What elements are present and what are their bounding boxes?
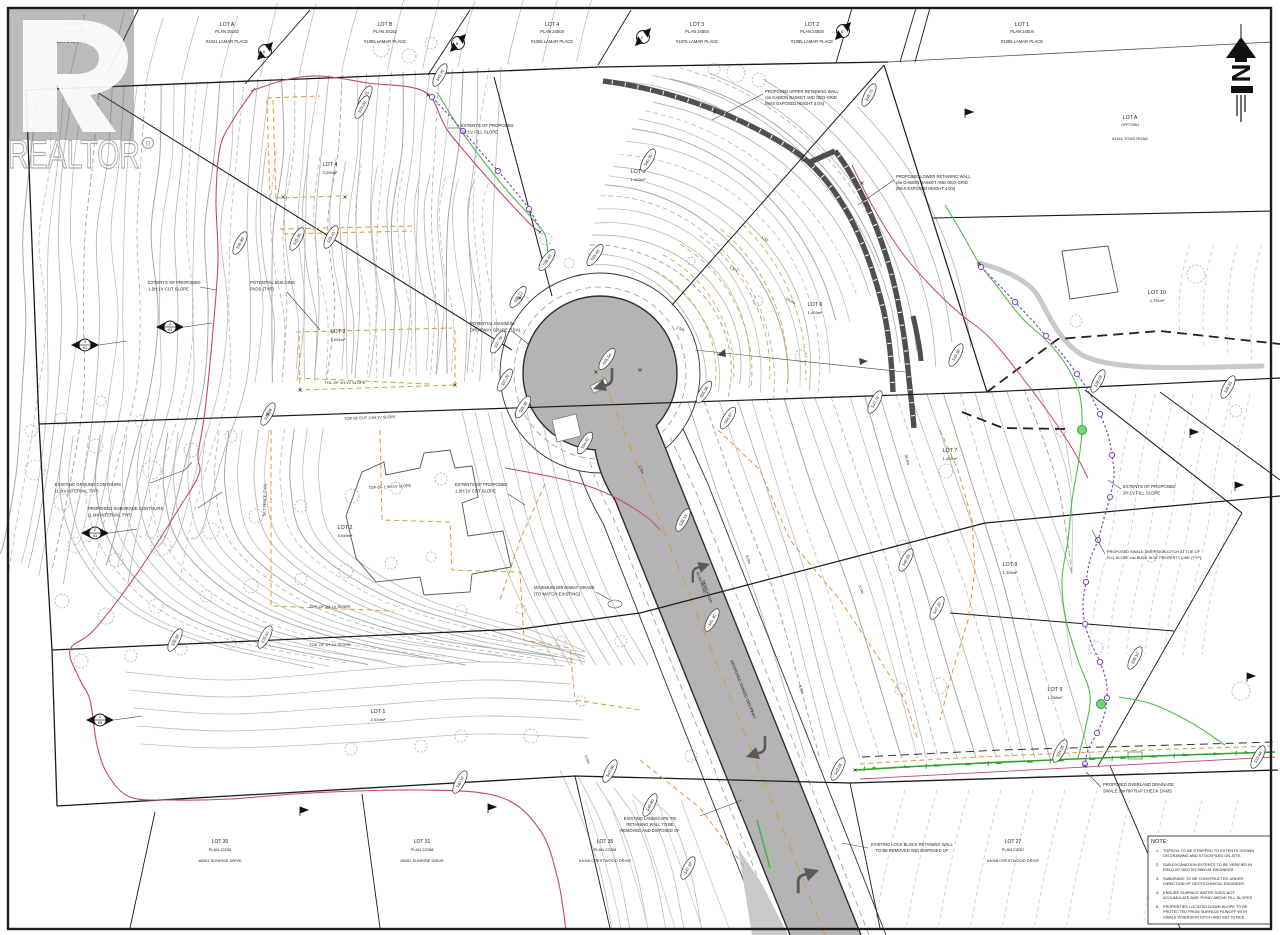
- svg-text:03: 03: [98, 721, 102, 725]
- svg-text:DIRECTION OF GEOTECHNICAL ENGI: DIRECTION OF GEOTECHNICAL ENGINEER.: [1163, 881, 1245, 886]
- svg-text:RETAINING WALL TO BE: RETAINING WALL TO BE: [626, 822, 674, 827]
- svg-text:LOT 9: LOT 9: [1048, 687, 1063, 693]
- svg-text:LOT 27: LOT 27: [1005, 839, 1022, 845]
- svg-text:LOT 4: LOT 4: [545, 22, 559, 28]
- svg-text:SWALE DIVERSION DITCH AND SILT: SWALE DIVERSION DITCH AND SILT FENCE.: [1163, 914, 1245, 919]
- svg-text:PROPOSED OVERLAND DRAINAGE: PROPOSED OVERLAND DRAINAGE: [1103, 782, 1174, 787]
- svg-text:EXTENTS OF PROPOSED: EXTENTS OF PROPOSED: [148, 280, 201, 285]
- svg-text:LOT 31: LOT 31: [414, 839, 431, 845]
- svg-text:PROPOSED SUBGRADE CONTOURS: PROPOSED SUBGRADE CONTOURS: [88, 506, 164, 511]
- svg-text:2H:1V FILL SLOPE: 2H:1V FILL SLOPE: [1123, 491, 1160, 496]
- svg-text:#8301 SUNRISE DRIVE: #8301 SUNRISE DRIVE: [198, 858, 242, 863]
- svg-text:LOT A: LOT A: [1123, 115, 1138, 121]
- svg-text:ON DRAWING AND STOCKPILED ON-S: ON DRAWING AND STOCKPILED ON-SITE.: [1163, 853, 1241, 858]
- svg-text:EXTENTS OF PROPOSED: EXTENTS OF PROPOSED: [1123, 484, 1176, 489]
- svg-text:PLAN 24504: PLAN 24504: [1010, 29, 1034, 34]
- svg-text:4: 4: [169, 322, 171, 326]
- svg-text:LOT 30: LOT 30: [212, 839, 229, 845]
- svg-text:1,393m²: 1,393m²: [1003, 570, 1018, 575]
- svg-text:NOTE:: NOTE:: [1151, 839, 1169, 845]
- svg-text:#1055 LAMAR PLACE: #1055 LAMAR PLACE: [364, 39, 406, 44]
- svg-text:4.: 4.: [1156, 890, 1159, 895]
- svg-text:3: 3: [84, 340, 86, 344]
- svg-text:POTENTIAL BUILDING: POTENTIAL BUILDING: [250, 280, 296, 285]
- svg-text:PROPOSED UPPER RETAINING WALL: PROPOSED UPPER RETAINING WALL: [765, 89, 839, 94]
- svg-text:1.5H:1V CUT SLOPE: 1.5H:1V CUT SLOPE: [455, 489, 496, 494]
- svg-text:(1.0m INTERVAL TYP): (1.0m INTERVAL TYP): [55, 489, 99, 494]
- svg-text:SWALE c/w RIP RAP CHECK DAMS: SWALE c/w RIP RAP CHECK DAMS: [1103, 789, 1172, 794]
- svg-text:1.: 1.: [1156, 848, 1159, 853]
- svg-text:FIELD BY GEOTECHNICAL ENGINEER: FIELD BY GEOTECHNICAL ENGINEER.: [1163, 867, 1234, 872]
- svg-text:3,049m²: 3,049m²: [338, 533, 353, 538]
- svg-text:FILL SLOPE c/w BUCK IN AT PROP: FILL SLOPE c/w BUCK IN AT PROPERTY LINE …: [1107, 555, 1202, 560]
- svg-text:#1161 TODD ROAD: #1161 TODD ROAD: [1112, 136, 1148, 141]
- svg-text:03: 03: [93, 534, 97, 538]
- svg-text:LOT 8: LOT 8: [1003, 562, 1018, 568]
- svg-text:LOT 3: LOT 3: [331, 329, 346, 335]
- svg-text:3.: 3.: [1156, 876, 1159, 881]
- svg-text:CPP74361: CPP74361: [1121, 123, 1139, 127]
- svg-text:EXTENTS OF PROPOSED: EXTENTS OF PROPOSED: [455, 482, 508, 487]
- svg-text:1,403m²: 1,403m²: [943, 456, 958, 461]
- svg-text:2: 2: [94, 528, 96, 532]
- svg-text:#1095 LAMAR PLACE: #1095 LAMAR PLACE: [1001, 39, 1043, 44]
- svg-text:LOT B: LOT B: [378, 22, 393, 28]
- svg-text:5.: 5.: [1156, 904, 1159, 909]
- svg-text:(TO MATCH EXISTING): (TO MATCH EXISTING): [534, 592, 581, 597]
- svg-text:#1041 LAMAR PLACE: #1041 LAMAR PLACE: [206, 39, 248, 44]
- svg-text:PLAN 24504: PLAN 24504: [540, 29, 564, 34]
- svg-text:EXISTING GROUND CONTOURS: EXISTING GROUND CONTOURS: [55, 482, 121, 487]
- svg-text:POTENTIAL MAXIMUM: POTENTIAL MAXIMUM: [470, 321, 515, 326]
- svg-text:MAXIMUM DRIVEWAY GRADE: MAXIMUM DRIVEWAY GRADE: [534, 585, 595, 590]
- svg-text:ACCUMULATE AND ‘POND’ ABOVE FI: ACCUMULATE AND ‘POND’ ABOVE FILL SLOPES: [1163, 895, 1253, 900]
- svg-text:PROPOSED LOWER RETAINING WALL: PROPOSED LOWER RETAINING WALL: [896, 174, 971, 179]
- svg-text:TOP OF 2H:1V SLOPE: TOP OF 2H:1V SLOPE: [309, 604, 351, 609]
- svg-text:TO BE REMOVED AND DISPOSED OF: TO BE REMOVED AND DISPOSED OF: [876, 848, 949, 853]
- svg-text:1,403m²: 1,403m²: [808, 310, 823, 315]
- svg-text:LOT 7: LOT 7: [943, 448, 958, 454]
- svg-text:TOE OF 1H:1V SLOPE: TOE OF 1H:1V SLOPE: [309, 642, 351, 647]
- svg-text:REALTOR: REALTOR: [8, 133, 140, 177]
- svg-text:EXISTING LANDSCAPE TIE: EXISTING LANDSCAPE TIE: [624, 816, 677, 821]
- svg-text:PLAN 22258: PLAN 22258: [594, 847, 617, 852]
- svg-text:LOT 2: LOT 2: [805, 22, 819, 28]
- svg-text:#1085 LAMAR PLACE: #1085 LAMAR PLACE: [791, 39, 833, 44]
- svg-text:#1065 LAMAR PLACE: #1065 LAMAR PLACE: [531, 39, 573, 44]
- svg-text:(1.0m INTERVAL TYP): (1.0m INTERVAL TYP): [88, 513, 132, 518]
- svg-text:LOT 1: LOT 1: [1015, 22, 1029, 28]
- svg-text:LOT 2: LOT 2: [338, 525, 353, 531]
- svg-text:#8351 SUNRISE DRIVE: #8351 SUNRISE DRIVE: [400, 858, 444, 863]
- svg-text:2,090m²: 2,090m²: [323, 170, 338, 175]
- svg-text:1.5H:1V CUT SLOPE: 1.5H:1V CUT SLOPE: [148, 287, 189, 292]
- svg-text:2.: 2.: [1156, 862, 1159, 867]
- svg-text:PLAN 22257: PLAN 22257: [1002, 847, 1025, 852]
- svg-text:#1075 LAMAR PLACE: #1075 LAMAR PLACE: [676, 39, 718, 44]
- svg-text:2,751m²: 2,751m²: [1150, 298, 1165, 303]
- svg-text:R: R: [145, 141, 150, 148]
- svg-text:LOT 10: LOT 10: [1148, 290, 1166, 296]
- svg-text:c/w GABION BASKET AND GEO-GRID: c/w GABION BASKET AND GEO-GRID: [765, 95, 837, 100]
- svg-text:1,091m²: 1,091m²: [331, 337, 346, 342]
- svg-text:1,403m²: 1,403m²: [631, 177, 646, 182]
- svg-text:TOL OF 1H:1V SLOPE: TOL OF 1H:1V SLOPE: [325, 380, 366, 385]
- svg-text:#1008 CRESTWOOD DRIVE: #1008 CRESTWOOD DRIVE: [987, 858, 1039, 863]
- svg-text:LOT 35: LOT 35: [597, 839, 614, 845]
- svg-text:PLAN 20162: PLAN 20162: [373, 29, 397, 34]
- svg-text:LOT 4: LOT 4: [323, 162, 338, 168]
- svg-text:(MAX EXPOSED HEIGHT 4.0m): (MAX EXPOSED HEIGHT 4.0m): [896, 186, 956, 191]
- svg-text:REMOVED AND DISPOSED OF: REMOVED AND DISPOSED OF: [620, 828, 680, 833]
- svg-text:EXISTING LOCK BLOCK RETAINING: EXISTING LOCK BLOCK RETAINING WALL: [871, 842, 953, 847]
- svg-text:2H:1V FILL SLOPE: 2H:1V FILL SLOPE: [461, 130, 498, 135]
- svg-text:PADS (TYP): PADS (TYP): [250, 287, 274, 292]
- svg-text:PLAN 24504: PLAN 24504: [685, 29, 709, 34]
- svg-text:1: 1: [99, 715, 101, 719]
- svg-text:LOT 1: LOT 1: [371, 709, 386, 715]
- svg-text:c/w GABION BASKET AND GEO-GRID: c/w GABION BASKET AND GEO-GRID: [896, 180, 968, 185]
- svg-text:PLAN 24504: PLAN 24504: [800, 29, 824, 34]
- svg-text:LOT 6: LOT 6: [808, 302, 823, 308]
- svg-text:(MAX EXPOSED HEIGHT 3.0m): (MAX EXPOSED HEIGHT 3.0m): [765, 101, 825, 106]
- svg-text:2,019m²: 2,019m²: [371, 717, 386, 722]
- svg-text:#1000 CRESTWOOD DRIVE: #1000 CRESTWOOD DRIVE: [579, 858, 631, 863]
- svg-text:PLAN 22258: PLAN 22258: [411, 847, 434, 852]
- svg-text:PROPOSED SWALE DIVERSION DITCH: PROPOSED SWALE DIVERSION DITCH AT TOE OF: [1107, 549, 1201, 554]
- svg-text:03: 03: [83, 346, 87, 350]
- svg-text:EXTENTS OF PROPOSED: EXTENTS OF PROPOSED: [461, 123, 514, 128]
- svg-text:LOT 3: LOT 3: [690, 22, 704, 28]
- svg-text:PLAN 20162: PLAN 20162: [215, 29, 239, 34]
- svg-text:LOT A: LOT A: [220, 22, 235, 28]
- svg-text:N: N: [1226, 64, 1256, 83]
- svg-text:PLAN 22258: PLAN 22258: [209, 847, 232, 852]
- svg-text:03: 03: [168, 328, 172, 332]
- svg-text:1,289m²: 1,289m²: [1048, 695, 1063, 700]
